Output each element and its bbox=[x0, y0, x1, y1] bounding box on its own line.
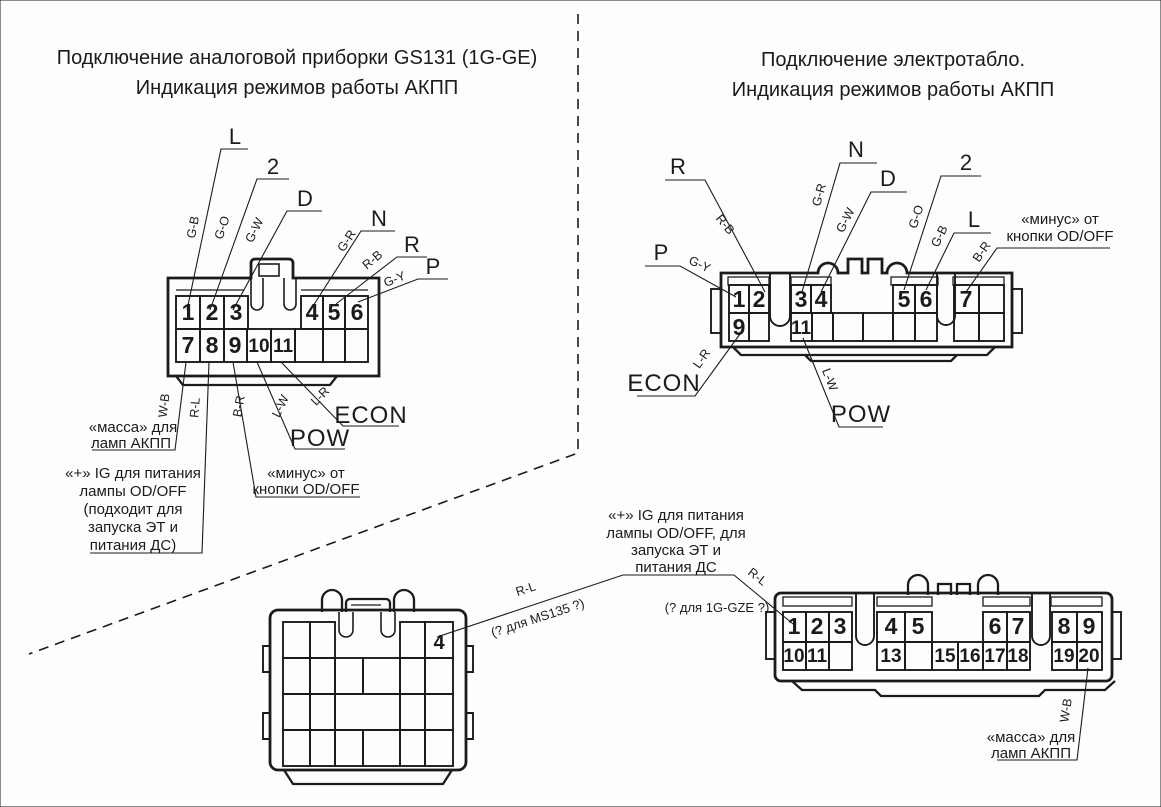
pin-cell-blank bbox=[400, 694, 425, 730]
pin-cell-blank bbox=[893, 313, 915, 341]
pin-number: 3 bbox=[795, 286, 808, 312]
pin-cell-blank bbox=[335, 730, 363, 766]
note-ms135: (? для MS135 ?) bbox=[489, 596, 586, 640]
left-title-line2: Индикация режимов работы АКПП bbox=[136, 77, 458, 99]
gear-label-N: N bbox=[371, 206, 387, 231]
pin-number: 11 bbox=[791, 318, 812, 339]
wire-label-GB: G-B bbox=[184, 215, 202, 239]
gear-label-P: P bbox=[654, 240, 669, 265]
pin-number: 16 bbox=[959, 646, 980, 667]
pin-number: 8 bbox=[1058, 613, 1071, 639]
gear-label-D: D bbox=[297, 186, 313, 211]
pin-number: 19 bbox=[1053, 646, 1074, 667]
wire-label-LR: L-R bbox=[308, 384, 332, 408]
wiring-diagram-page: Подключение аналоговой приборки GS131 (1… bbox=[0, 0, 1161, 807]
right-title-line2: Индикация режимов работы АКПП bbox=[732, 79, 1054, 101]
annotation-minus-line2: кнопки OD/OFF bbox=[252, 481, 359, 498]
pin-cell-blank bbox=[363, 730, 400, 766]
pin-number: 11 bbox=[807, 646, 828, 667]
left-title-line1: Подключение аналоговой приборки GS131 (1… bbox=[57, 47, 538, 69]
gear-label-R: R bbox=[404, 232, 420, 257]
wire-label-RL-right: R-L bbox=[745, 565, 770, 588]
gear-label-L: L bbox=[968, 207, 980, 232]
pin-cell-blank bbox=[310, 622, 335, 658]
wire-label-WB: W-B bbox=[1057, 697, 1075, 723]
gear-label-P: P bbox=[426, 254, 441, 279]
annotation-ig-line1: «+» IG для питания bbox=[608, 507, 744, 524]
pin-cell-blank bbox=[363, 658, 400, 694]
wire-label-GW: G-W bbox=[833, 205, 857, 234]
pin-number-4: 4 bbox=[433, 632, 445, 654]
pin-number: 7 bbox=[182, 332, 195, 358]
annotation-minus-line1: «минус» от bbox=[1021, 211, 1099, 228]
pow-label: POW bbox=[831, 401, 891, 428]
pin-number: 18 bbox=[1007, 646, 1028, 667]
pin-cell-blank bbox=[905, 642, 932, 670]
right-gear-leaders: P R N D 2 L G-Y R-B G-R G-W G-O G-B «мин… bbox=[645, 137, 1114, 297]
pin-number: 1 bbox=[733, 286, 746, 312]
annotation-ig-line4: питания ДС bbox=[635, 559, 717, 576]
pin-cell-blank bbox=[979, 285, 1004, 313]
annotation-minus-line2: кнопки OD/OFF bbox=[1006, 228, 1113, 245]
pin-number: 17 bbox=[984, 646, 1005, 667]
pin-cell-blank bbox=[829, 642, 852, 670]
pin-cell-blank bbox=[400, 622, 425, 658]
pin-cell-blank bbox=[400, 730, 425, 766]
wire-label-GO: G-O bbox=[906, 203, 927, 230]
pin-cell-blank bbox=[812, 313, 833, 341]
econ-label: ECON bbox=[627, 370, 700, 397]
pin-cell-blank bbox=[833, 313, 863, 341]
bottom-right-connector: 1 2 3 4 5 6 7 8 9 10 11 13 15 16 17 18 1… bbox=[766, 575, 1121, 762]
annotation-massa-line1: «масса» для bbox=[89, 419, 177, 436]
pin-number: 13 bbox=[880, 646, 901, 667]
paper-background bbox=[0, 0, 1161, 807]
pin-cell-blank bbox=[979, 313, 1004, 341]
annotation-massa-line1: «масса» для bbox=[987, 729, 1075, 746]
annotation-ig-line3: запуска ЭТ и bbox=[631, 542, 721, 559]
gear-label-L: L bbox=[229, 124, 241, 149]
pin-number: 15 bbox=[934, 646, 956, 667]
pin-number: 6 bbox=[351, 299, 364, 325]
gear-label-2: 2 bbox=[267, 154, 279, 179]
annotation-massa-line2: ламп АКПП bbox=[991, 745, 1071, 762]
annotation-plus-ig-line3: (подходит для bbox=[83, 501, 182, 518]
right-diagram: Подключение электротабло. Индикация режи… bbox=[627, 49, 1113, 428]
diagram-canvas: Подключение аналоговой приборки GS131 (1… bbox=[0, 0, 1161, 807]
pin-cell-blank bbox=[425, 658, 453, 694]
wire-label-WB: W-B bbox=[156, 393, 173, 419]
middle-annotation: «+» IG для питания лампы OD/OFF, для зап… bbox=[437, 507, 793, 640]
pin-cell-blank bbox=[295, 329, 323, 362]
wire-label-BR: B-R bbox=[970, 239, 994, 265]
pin-cell-blank bbox=[335, 658, 363, 694]
pin-number: 3 bbox=[834, 613, 847, 639]
pin-number: 10 bbox=[248, 336, 269, 357]
bottom-left-grid bbox=[283, 622, 453, 766]
wire-label-RL-left: R-L bbox=[514, 579, 538, 599]
wire-label-RL: R-L bbox=[187, 397, 202, 418]
left-gear-leaders: L 2 D N R P G-B G-O G-W G-R R-B G-Y bbox=[184, 124, 448, 310]
grid-background bbox=[0, 0, 1161, 807]
left-diagram: Подключение аналоговой приборки GS131 (1… bbox=[57, 47, 538, 554]
pin-number: 10 bbox=[783, 646, 804, 667]
pin-cell-blank bbox=[283, 730, 310, 766]
pin-number: 4 bbox=[815, 286, 828, 312]
right-title-line1: Подключение электротабло. bbox=[761, 49, 1025, 71]
gear-label-D: D bbox=[880, 166, 896, 191]
pin-cell-blank bbox=[863, 313, 893, 341]
pin-number: 11 bbox=[273, 336, 294, 357]
wire-label-LW: L-W bbox=[819, 366, 840, 393]
pin-number: 4 bbox=[885, 613, 898, 639]
pin-cell-blank bbox=[749, 313, 769, 341]
annotation-plus-ig-line2: лампы OD/OFF bbox=[79, 483, 186, 500]
annotation-massa-line2: ламп АКПП bbox=[91, 435, 171, 452]
annotation-plus-ig-line4: запуска ЭТ и bbox=[88, 519, 178, 536]
pin-number: 3 bbox=[230, 299, 243, 325]
pin-cell-blank bbox=[310, 658, 335, 694]
pin-number: 6 bbox=[989, 613, 1002, 639]
pin-cell-blank bbox=[283, 622, 310, 658]
annotation-plus-ig-line1: «+» IG для питания bbox=[65, 465, 201, 482]
annotation-plus-ig-line5: питания ДС) bbox=[90, 537, 176, 554]
pin-cell-blank bbox=[323, 329, 345, 362]
section-divider-dashed-line bbox=[29, 14, 578, 654]
note-1g-gze: (? для 1G-GZE ?) bbox=[665, 600, 770, 615]
pin-number: 8 bbox=[206, 332, 219, 358]
pin-cell-blank bbox=[400, 658, 425, 694]
pin-number: 9 bbox=[229, 332, 242, 358]
wire-label-BR: B-R bbox=[230, 394, 248, 418]
annotation-ig-line2: лампы OD/OFF, для bbox=[606, 525, 745, 542]
pin-cell-blank bbox=[283, 658, 310, 694]
pin-cell-blank bbox=[345, 329, 368, 362]
pin-number: 5 bbox=[328, 299, 341, 325]
wire-label-GB: G-B bbox=[928, 223, 950, 249]
pin-cell-blank bbox=[283, 694, 310, 730]
pin-number: 2 bbox=[811, 613, 824, 639]
pin-number: 7 bbox=[1012, 613, 1025, 639]
pin-cell-blank bbox=[915, 313, 937, 341]
wire-label-GY: G-Y bbox=[382, 268, 408, 290]
gear-label-R: R bbox=[670, 154, 686, 179]
pin-cell-blank bbox=[954, 313, 979, 341]
pin-cell-blank bbox=[425, 694, 453, 730]
wire-label-LR: L-R bbox=[690, 346, 713, 371]
pin-number: 1 bbox=[788, 613, 801, 639]
pin-number: 7 bbox=[960, 286, 973, 312]
pow-label: POW bbox=[290, 425, 350, 452]
pin-cell-blank bbox=[310, 730, 335, 766]
pin-number: 4 bbox=[306, 299, 319, 325]
pin-cell-blank bbox=[310, 694, 335, 730]
econ-label: ECON bbox=[334, 402, 407, 429]
pin-number: 9 bbox=[1083, 613, 1096, 639]
pin-number: 20 bbox=[1078, 646, 1099, 667]
pin-cell-blank bbox=[335, 694, 400, 730]
pin-cell-blank bbox=[425, 730, 453, 766]
bottom-left-connector: 4 bbox=[263, 590, 473, 784]
gear-label-2: 2 bbox=[960, 150, 972, 175]
wire-label-GO: G-O bbox=[212, 214, 233, 241]
wire-label-GW: G-W bbox=[242, 215, 266, 244]
gear-label-N: N bbox=[848, 137, 864, 162]
pin-number: 5 bbox=[912, 613, 925, 639]
annotation-minus-line1: «минус» от bbox=[267, 465, 345, 482]
left-bottom-annotations: W-B R-L B-R L-W L-R «масса» для ламп АКП… bbox=[65, 362, 408, 554]
wire-label-GR: G-R bbox=[809, 182, 829, 208]
